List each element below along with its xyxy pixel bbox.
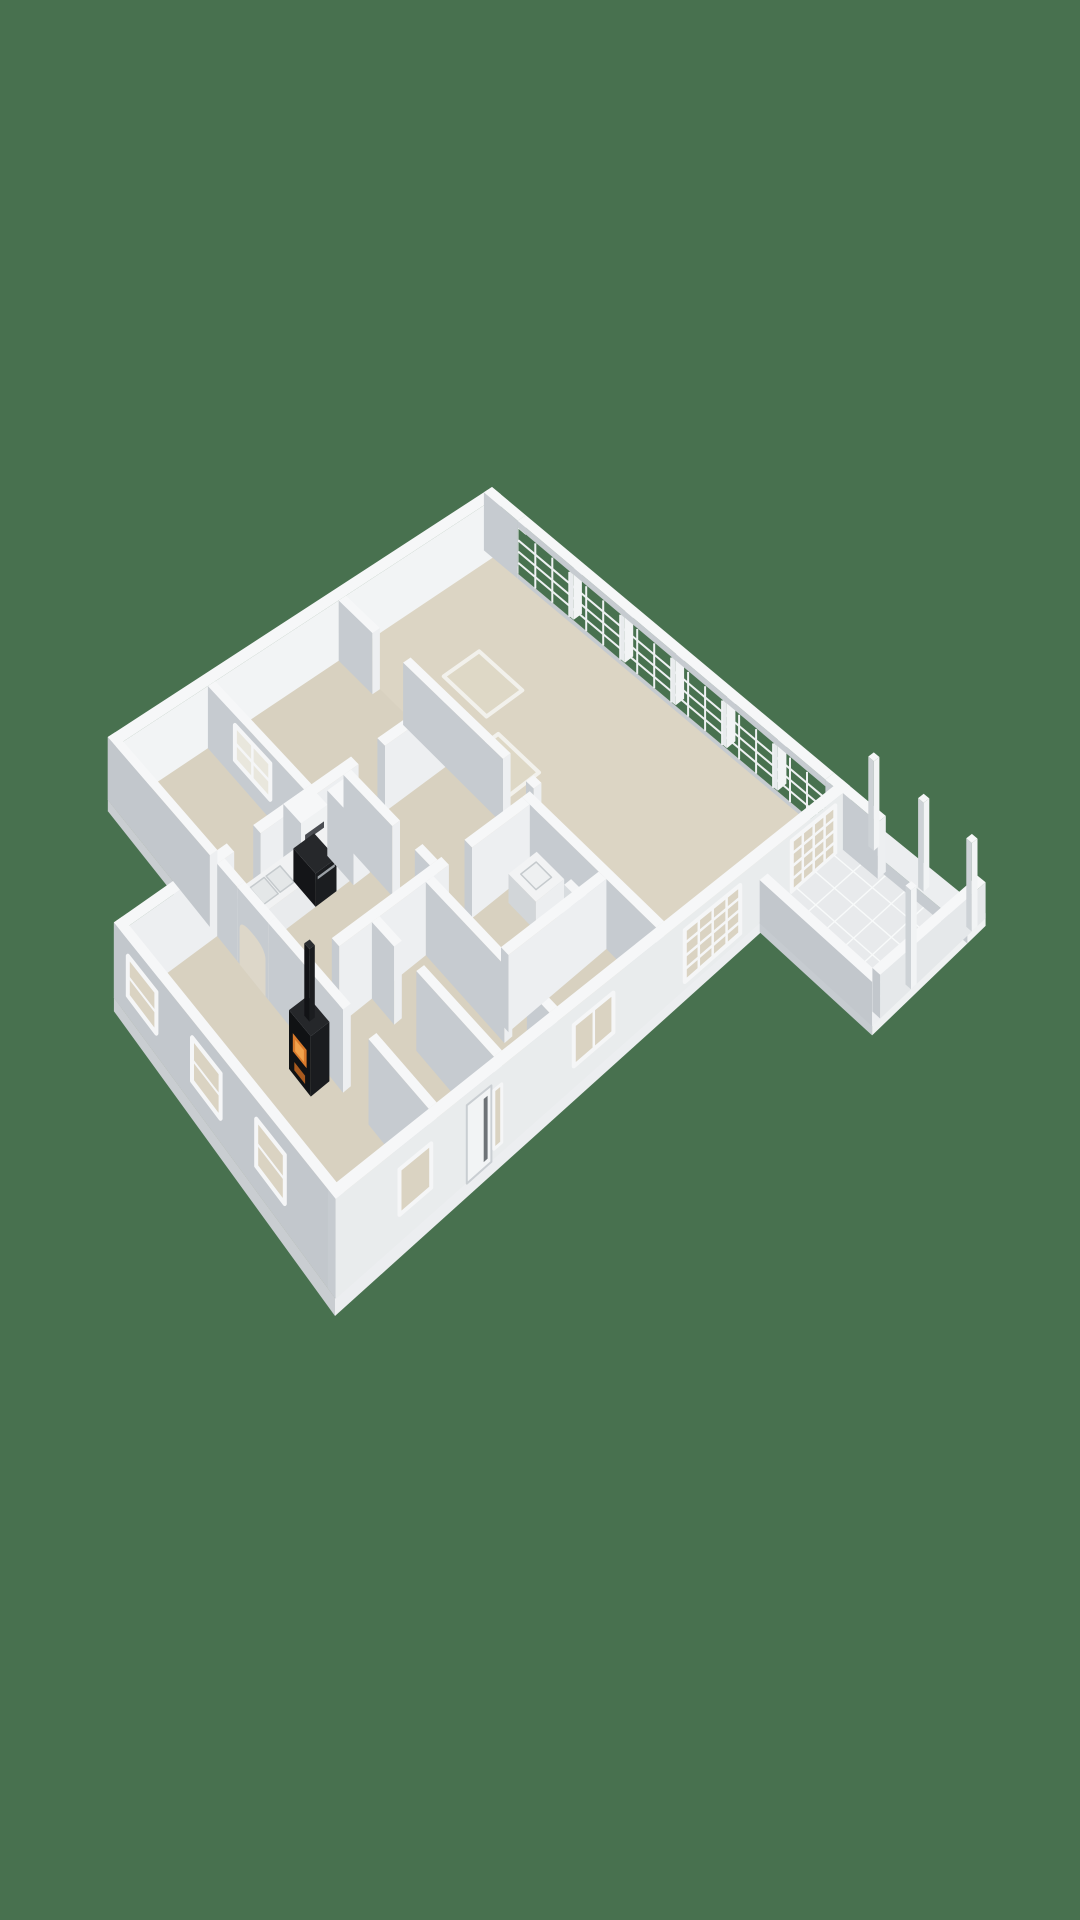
- pergola-post-1-face-se: [874, 757, 880, 851]
- entry-door-glass: [484, 1096, 488, 1162]
- hall-south-wall-2-face-sw: [465, 840, 473, 918]
- stove-back-wall-face-se: [343, 1004, 351, 1093]
- entry-sidelight: [494, 1084, 502, 1149]
- window-wall-mullion-5-face-sw: [774, 743, 778, 791]
- stove-flue-pipe-face-se: [309, 945, 314, 1022]
- pergola-post-2-face-sw: [918, 798, 924, 892]
- storage-wall-1-face-se: [392, 821, 400, 897]
- great-room-west-wall-1-face-se: [372, 628, 380, 694]
- pergola-post-1-face-sw: [868, 757, 874, 851]
- window-wall-mullion-2-face-sw: [621, 614, 625, 662]
- se-facade-wall-face-sw: [328, 1189, 336, 1299]
- strip-west-wall-face-se: [210, 850, 218, 927]
- pergola-post-4-face-se: [911, 886, 917, 990]
- window-wall-mullion-3-face-sw: [672, 657, 676, 705]
- pergola-post-4-face-sw: [906, 886, 912, 990]
- pergola-post-3-face-sw: [966, 838, 972, 931]
- pergola-post-3-face-se: [972, 839, 978, 932]
- terrace-parapet-se-face-sw: [872, 968, 880, 1019]
- hall-east-wall-1-face-se: [394, 941, 402, 1025]
- bedroom-se-north-wall-face-sw: [501, 947, 509, 1032]
- window-wall-mullion-1-face-sw: [570, 571, 574, 619]
- floor-plan-3d-view: [0, 0, 1080, 1920]
- floor-plan-svg: [0, 0, 1080, 1920]
- pergola-post-2-face-se: [924, 798, 930, 891]
- window-wall-mullion-4-face-sw: [723, 700, 727, 748]
- stove-flue-pipe-face-sw: [304, 943, 309, 1021]
